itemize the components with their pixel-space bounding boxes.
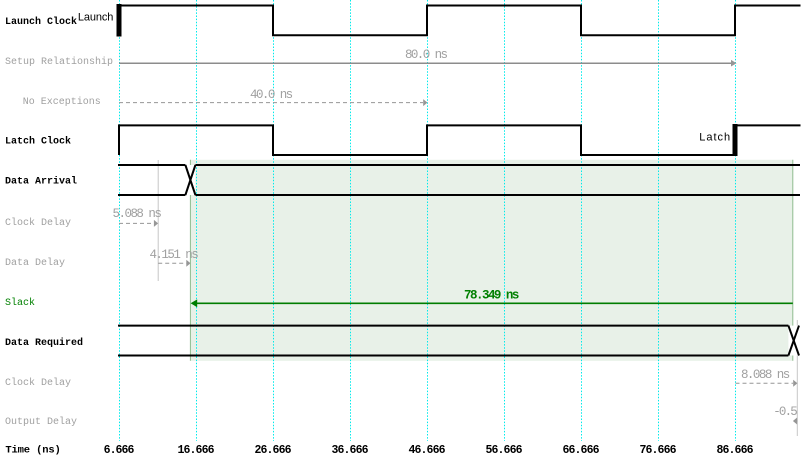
svg-text:8.088 ns: 8.088 ns [741, 368, 790, 382]
svg-text:Time (ns): Time (ns) [5, 445, 60, 455]
svg-text:16.666: 16.666 [178, 444, 215, 455]
svg-text:Data Required: Data Required [5, 337, 83, 349]
svg-text:Data Arrival: Data Arrival [5, 175, 77, 187]
svg-text:Clock Delay: Clock Delay [5, 377, 71, 389]
svg-text:78.349 ns: 78.349 ns [464, 289, 519, 303]
svg-text:Latch: Latch [699, 132, 730, 144]
svg-text:No Exceptions: No Exceptions [23, 96, 101, 108]
svg-text:56.666: 56.666 [486, 444, 523, 455]
svg-text:-0.5: -0.5 [773, 405, 798, 419]
svg-text:Launch Clock: Launch Clock [5, 16, 77, 28]
svg-text:6.666: 6.666 [104, 444, 135, 455]
svg-text:Latch Clock: Latch Clock [5, 135, 71, 147]
svg-text:66.666: 66.666 [563, 444, 600, 455]
svg-text:Launch: Launch [78, 12, 114, 24]
svg-text:Clock Delay: Clock Delay [5, 217, 71, 229]
svg-text:46.666: 46.666 [409, 444, 446, 455]
svg-text:36.666: 36.666 [332, 444, 369, 455]
svg-text:4.151 ns: 4.151 ns [149, 248, 198, 262]
svg-text:5.088 ns: 5.088 ns [113, 207, 162, 221]
svg-text:80.0 ns: 80.0 ns [405, 48, 448, 62]
svg-text:Output Delay: Output Delay [5, 416, 77, 428]
svg-text:76.666: 76.666 [640, 444, 677, 455]
svg-text:Setup Relationship: Setup Relationship [5, 56, 113, 68]
svg-text:Slack: Slack [5, 297, 35, 309]
svg-text:26.666: 26.666 [255, 444, 292, 455]
svg-text:40.0 ns: 40.0 ns [250, 88, 293, 102]
svg-text:Data Delay: Data Delay [5, 257, 65, 269]
svg-text:86.666: 86.666 [717, 444, 754, 455]
